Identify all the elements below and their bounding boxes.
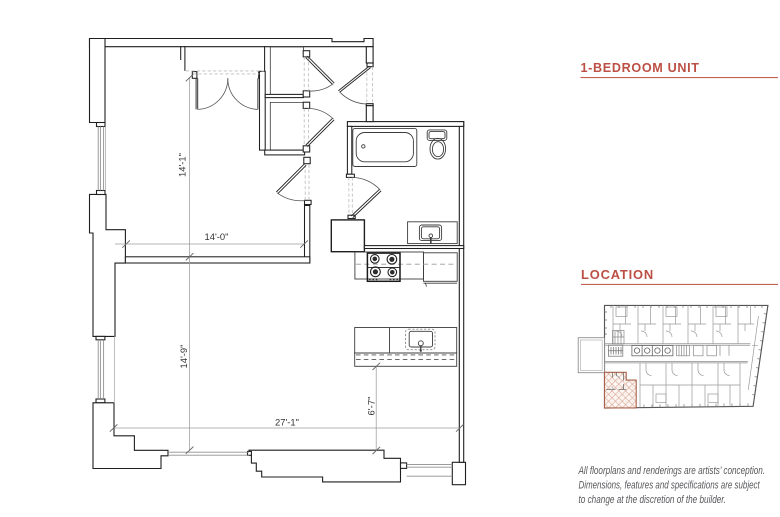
svg-text:Dimensions, features and speci: Dimensions, features and specifications … <box>579 480 761 492</box>
svg-text:LOCATION: LOCATION <box>581 267 653 282</box>
svg-text:to change at the discretion of: to change at the discretion of the build… <box>579 494 727 506</box>
svg-text:1-BEDROOM UNIT: 1-BEDROOM UNIT <box>581 61 700 75</box>
svg-text:27'-1": 27'-1" <box>275 417 299 428</box>
svg-text:14'-0": 14'-0" <box>205 231 229 242</box>
svg-text:14'-1": 14'-1" <box>177 153 188 177</box>
svg-text:6'-7": 6'-7" <box>365 397 376 416</box>
svg-text:All floorplans and renderings: All floorplans and renderings are artist… <box>578 465 765 477</box>
svg-text:14'-9": 14'-9" <box>178 345 189 369</box>
